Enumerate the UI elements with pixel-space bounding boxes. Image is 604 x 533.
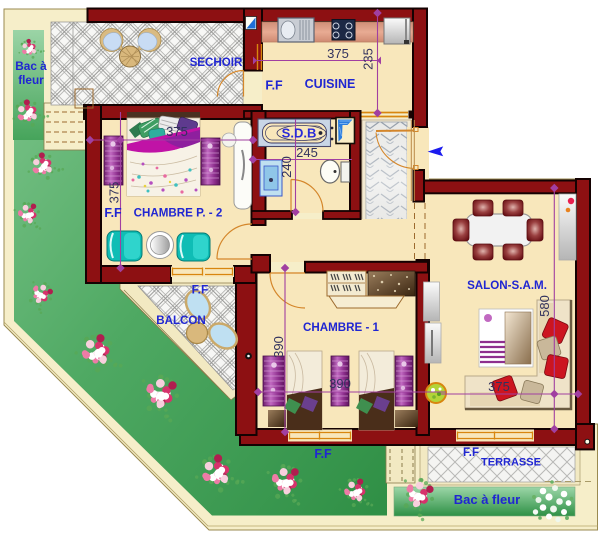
svg-text:375: 375 (107, 182, 122, 204)
svg-text:580: 580 (537, 295, 552, 317)
svg-text:CUISINE: CUISINE (305, 77, 356, 91)
svg-text:F.F: F.F (463, 447, 479, 459)
svg-text:240: 240 (279, 156, 294, 178)
svg-text:F.F: F.F (104, 206, 122, 220)
svg-text:CHAMBRE P. - 2: CHAMBRE P. - 2 (134, 207, 223, 220)
svg-text:390: 390 (329, 376, 351, 391)
svg-text:CHAMBRE - 1: CHAMBRE - 1 (303, 321, 380, 334)
svg-text:Bac à: Bac à (15, 59, 47, 73)
svg-text:F.F: F.F (265, 79, 283, 93)
svg-text:375: 375 (327, 46, 349, 61)
svg-text:235: 235 (361, 48, 376, 70)
svg-text:F.F: F.F (192, 283, 209, 297)
svg-text:Bac à fleur: Bac à fleur (454, 492, 520, 507)
svg-text:375: 375 (488, 379, 510, 394)
svg-text:F.F: F.F (314, 447, 332, 461)
svg-text:fleur: fleur (18, 73, 44, 87)
svg-text:375: 375 (166, 124, 188, 139)
svg-text:TERRASSE: TERRASSE (481, 457, 541, 469)
svg-text:S.D.B: S.D.B (282, 126, 317, 141)
svg-text:245: 245 (296, 145, 318, 160)
svg-text:SECHOIR: SECHOIR (190, 56, 243, 69)
svg-text:BALCON: BALCON (156, 314, 206, 327)
svg-text:390: 390 (271, 336, 286, 358)
svg-text:SALON-S.A.M.: SALON-S.A.M. (467, 279, 547, 292)
